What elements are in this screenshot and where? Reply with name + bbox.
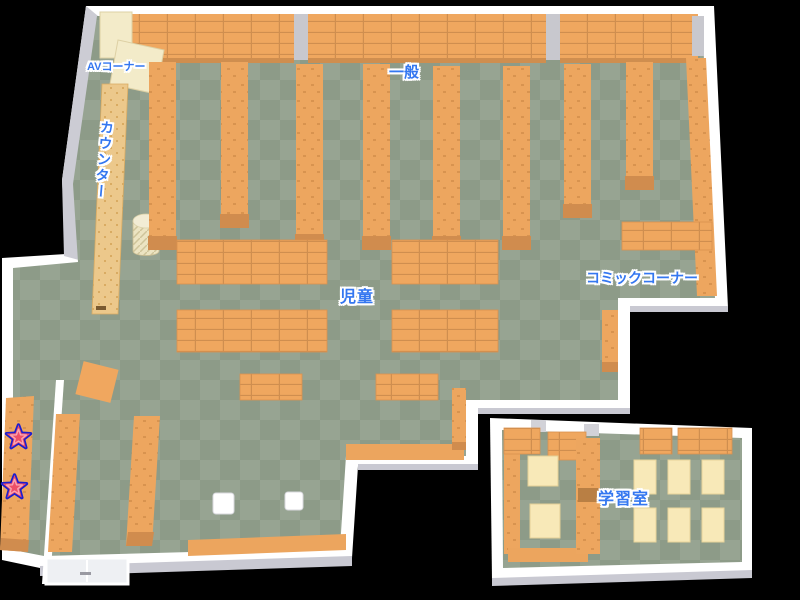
study-desk	[702, 508, 724, 542]
bookshelf	[392, 240, 498, 284]
label-av-corner: AVコーナー	[87, 58, 145, 74]
bookshelf	[177, 240, 327, 284]
door-handle	[80, 572, 91, 575]
stool	[213, 493, 234, 514]
bookshelf-base	[502, 236, 531, 250]
bookshelf-base	[0, 538, 29, 552]
bookshelf-base	[148, 236, 177, 250]
library-floor-map: AVコーナー 一般 カウンター 児童 コミックコーナー 学習室	[0, 0, 800, 600]
divider-gap	[578, 488, 600, 502]
wall-bookshelf	[452, 388, 466, 450]
star-marker-icon	[0, 473, 29, 502]
bookshelf	[296, 64, 323, 234]
bookshelf-base	[126, 532, 154, 546]
bookshelf	[392, 310, 498, 352]
star-marker-icon	[4, 423, 33, 452]
study-desk	[668, 460, 690, 494]
study-desk	[668, 508, 690, 542]
label-comic-corner: コミックコーナー	[586, 268, 698, 288]
bookshelf	[177, 310, 327, 352]
wall-pillar	[692, 16, 704, 56]
bookshelf	[376, 374, 438, 400]
map-canvas	[0, 0, 800, 600]
bookshelf	[560, 14, 698, 60]
step-wall-shade	[358, 464, 478, 470]
bookshelf	[640, 428, 672, 454]
wall-bookshelf	[346, 444, 464, 460]
bookshelf	[149, 62, 176, 236]
bookshelf	[564, 64, 591, 204]
bookshelf	[503, 66, 530, 236]
bookshelf	[308, 14, 546, 60]
bookshelf	[240, 374, 302, 400]
wall-pillar	[294, 14, 308, 60]
bookshelf	[602, 310, 618, 370]
study-desk	[634, 508, 656, 542]
bookshelf	[622, 222, 712, 250]
top-wall-bookshelves	[130, 14, 704, 63]
bookshelf-base	[452, 442, 466, 450]
bookshelf	[504, 428, 540, 454]
bookshelf	[221, 62, 248, 214]
bookshelf	[678, 428, 732, 454]
bookshelf-base	[625, 176, 654, 190]
study-desk	[530, 504, 560, 538]
stool	[285, 492, 303, 510]
bookshelf	[626, 62, 653, 176]
bookshelf-base	[563, 204, 592, 218]
bookshelf	[433, 66, 460, 236]
step-wall-shade	[478, 408, 630, 414]
study-desk	[528, 456, 558, 486]
label-general: 一般	[389, 61, 419, 82]
label-children: 児童	[340, 283, 374, 307]
bookshelf-base	[602, 362, 618, 372]
bookshelf-edge	[308, 58, 546, 63]
bookshelf-base	[220, 214, 249, 228]
entrance-door	[46, 558, 128, 584]
wall-pillar	[546, 14, 560, 60]
bookshelf	[363, 64, 390, 236]
bookshelf	[504, 442, 520, 554]
study-desk	[702, 460, 724, 494]
label-study-room: 学習室	[598, 485, 649, 509]
step-wall-shade	[630, 306, 728, 312]
bookshelf-base	[362, 236, 391, 250]
